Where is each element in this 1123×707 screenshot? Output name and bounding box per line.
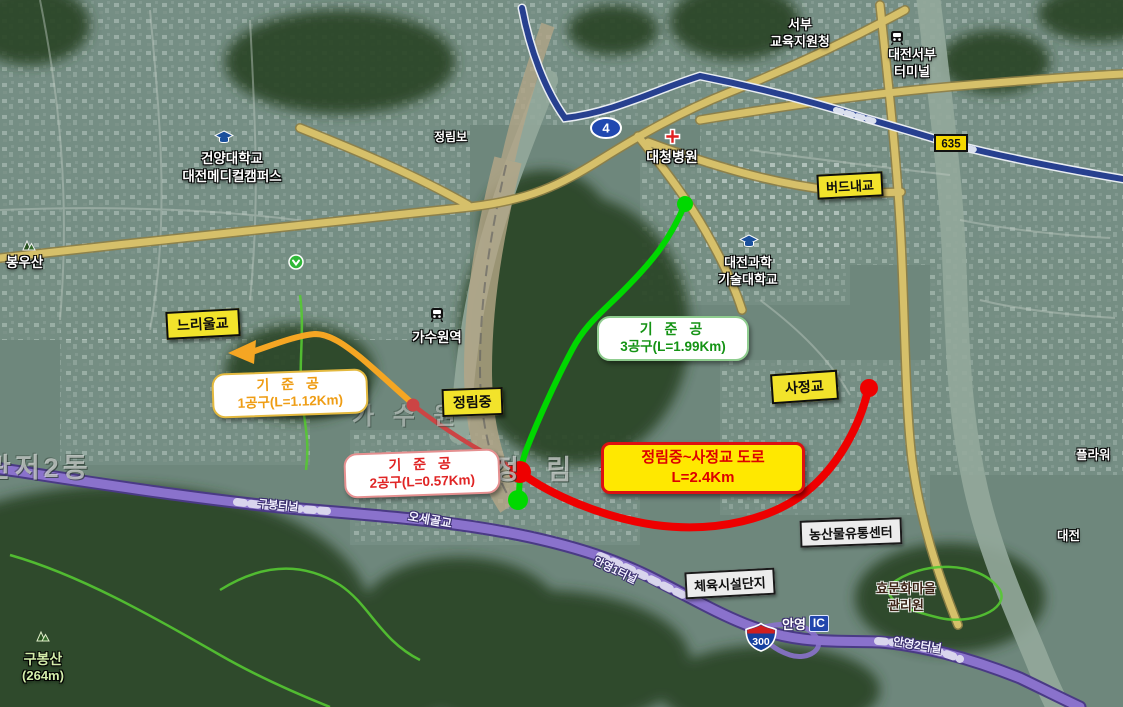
- label-agri-distribution-center: 농산물유통센터: [800, 517, 903, 548]
- label-neuriul-bridge: 느리울교: [165, 308, 240, 340]
- poi-daejeon-science-tech-univ: 대전과학 기술대학교: [708, 255, 788, 289]
- mountain-icon: [32, 630, 50, 642]
- poi-gasuwon-station: 가수원역: [404, 329, 470, 347]
- label-sports-complex: 체육시설단지: [684, 568, 775, 600]
- label-sajeong-bridge: 사정교: [770, 370, 839, 405]
- poi-gubongsan: 구봉산 (264m): [10, 650, 76, 685]
- new-road-highlight-box: 정림중~사정교 도로 L=2.4Km: [601, 442, 805, 494]
- anyeong-ic-label: 안영 IC: [782, 614, 829, 633]
- poi-bongwoosan: 봉우산: [6, 254, 43, 272]
- graduation-cap-icon: [739, 234, 759, 249]
- district-watermark-gwanjeo: 관저2동: [0, 446, 92, 485]
- endpoint-dot: [677, 196, 693, 212]
- graduation-cap-icon: [214, 130, 234, 145]
- section2-box: 기 준 공 2공구(L=0.57Km): [343, 448, 500, 499]
- ic-badge: IC: [809, 615, 829, 632]
- poi-daejeon-seobu-terminal: 대전서부 터미널: [872, 47, 952, 81]
- endpoint-dot: [508, 490, 528, 510]
- road-label-gubong-tunnel: 구봉터널: [257, 495, 299, 514]
- hospital-cross-icon: [664, 128, 681, 145]
- poi-konyang-university: 건양대학교 대전메디컬캠퍼스: [158, 150, 306, 185]
- train-icon: [429, 307, 445, 323]
- map-stage: 정 림 동 가 수 원 관저2동 구봉터널 오세골교 안영1터널 안영2터널 안…: [0, 0, 1123, 707]
- route4-shield: 4: [590, 117, 622, 139]
- poi-daejeon-edge: 대전: [1057, 528, 1080, 544]
- route300-shield: 300: [744, 622, 778, 652]
- svg-text:4: 4: [602, 121, 610, 136]
- label-jeongnim-middle-school: 정림중: [442, 387, 504, 417]
- poi-seobu-education-office: 서부 교육지원청: [760, 17, 840, 51]
- label-beodeunae-bridge: 버드내교: [816, 171, 883, 199]
- satellite-map: [0, 0, 1123, 707]
- poi-daecheong-hospital: 대청병원: [632, 148, 712, 166]
- mountain-icon: [18, 239, 36, 251]
- poi-hyomunhwa-village: 효문화마을 관리원: [868, 581, 944, 615]
- section3-box: 기 준 공 3공구(L=1.99Km): [597, 316, 749, 361]
- endpoint-dot: [860, 379, 878, 397]
- train-icon: [889, 30, 905, 46]
- poi-jeongnimbo: 정림보: [434, 130, 467, 146]
- anyeong-ic-name: 안영: [782, 614, 806, 633]
- route635-shield: 635: [934, 134, 968, 152]
- svg-text:300: 300: [752, 636, 770, 648]
- trail-marker-icon: [289, 255, 303, 269]
- poi-flower-edge: 플라워: [1076, 447, 1111, 463]
- svg-text:635: 635: [941, 139, 961, 151]
- section1-box: 기 준 공 1공구(L=1.12Km): [211, 368, 368, 419]
